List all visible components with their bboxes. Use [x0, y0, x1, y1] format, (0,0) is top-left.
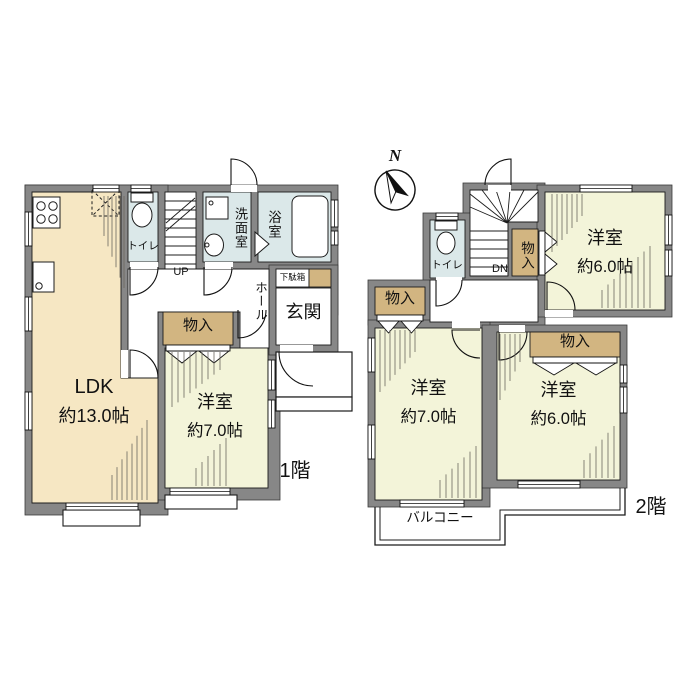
bathtub	[292, 196, 328, 257]
kitchen-stove	[33, 197, 60, 228]
closet-f2-stairs-label: 物入	[516, 234, 534, 276]
yoshitsu-sw-name: 洋室	[374, 374, 483, 400]
door-opening	[436, 277, 462, 282]
yoshitsu-f1-size: 約7.0帖	[162, 417, 268, 441]
room-stairs-f1	[165, 192, 196, 269]
closet-f2-south-label: 物入	[530, 334, 620, 351]
terrace-step-ldk	[63, 510, 140, 526]
floorplan-page: LDK 約13.0帖 洋室 約7.0帖 トイレ UP 洗面室 浴室 ホール 下駄…	[0, 0, 700, 700]
stairs-dn-label: DN	[485, 263, 515, 275]
bifold-track	[539, 231, 545, 275]
compass-north-label: N	[383, 146, 407, 165]
door-opening	[488, 185, 511, 192]
yoshitsu-se-label: 洋室 約6.0帖	[504, 376, 613, 429]
bifold-track	[166, 345, 230, 351]
closet-f1-label: 物入	[163, 318, 233, 335]
yoshitsu-f1-label: 洋室 約7.0帖	[162, 388, 268, 441]
stove-burner	[49, 215, 57, 223]
door-arc	[231, 159, 257, 185]
balcony-label: バルコニー	[392, 510, 488, 525]
entrance-label: 玄関	[276, 302, 331, 322]
washroom-label: 洗面室	[229, 195, 247, 261]
closet-f2-west-label: 物入	[375, 291, 425, 308]
yoshitsu-sw-label: 洋室 約7.0帖	[374, 374, 483, 427]
toilet-tank-f1	[131, 193, 153, 202]
ldk-name: LDK	[38, 376, 150, 399]
laundry-tap	[205, 243, 209, 247]
door-opening	[452, 320, 480, 328]
yoshitsu-ne-size: 約6.0帖	[549, 253, 661, 277]
yoshitsu-ne-label: 洋室 約6.0帖	[549, 224, 661, 277]
toilet-bowl-f1	[132, 203, 152, 227]
stove-burner	[37, 215, 45, 223]
toilet-tank-f2	[435, 221, 457, 230]
toilet-f2-label: トイレ	[427, 260, 467, 272]
stove-burner	[49, 202, 57, 210]
entrance-step	[276, 397, 352, 411]
yoshitsu-sw-size: 約7.0帖	[374, 403, 483, 427]
bathroom-label: 浴室	[263, 199, 281, 249]
compass	[368, 163, 422, 217]
yoshitsu-ne-name: 洋室	[549, 224, 661, 250]
door-opening	[121, 350, 128, 378]
washbasin-tap	[209, 201, 213, 205]
door-opening	[205, 262, 233, 269]
shoe-cabinet-label: 下駄箱	[276, 273, 309, 283]
yoshitsu-se-name: 洋室	[504, 376, 613, 402]
door-opening	[130, 262, 158, 269]
stairs-up-label: UP	[165, 266, 197, 278]
door-opening	[231, 185, 257, 192]
floor2-label: 2階	[624, 496, 678, 518]
yoshitsu-f1-name: 洋室	[162, 388, 268, 414]
ldk-size: 約13.0帖	[38, 402, 150, 428]
kitchen-sink-dot	[36, 283, 42, 289]
door-opening	[280, 345, 313, 352]
hall-label: ホール	[250, 271, 267, 331]
yoshitsu-se-size: 約6.0帖	[504, 405, 613, 429]
ldk-label: LDK 約13.0帖	[38, 376, 150, 428]
bifold-track	[533, 357, 617, 363]
toilet-bowl-f2	[437, 232, 455, 254]
floor1-label: 1階	[268, 460, 322, 482]
terrace-step-yoshitsu	[165, 495, 237, 509]
stove-burner	[37, 202, 45, 210]
shoe-cabinet-box	[309, 269, 331, 287]
door-opening	[545, 310, 573, 317]
washbasin	[206, 197, 228, 219]
room-hall-f2	[430, 280, 538, 322]
door-arc	[485, 159, 511, 185]
door-opening	[499, 325, 525, 332]
bifold-track	[377, 315, 423, 321]
toilet-f1-label: トイレ	[124, 241, 162, 253]
